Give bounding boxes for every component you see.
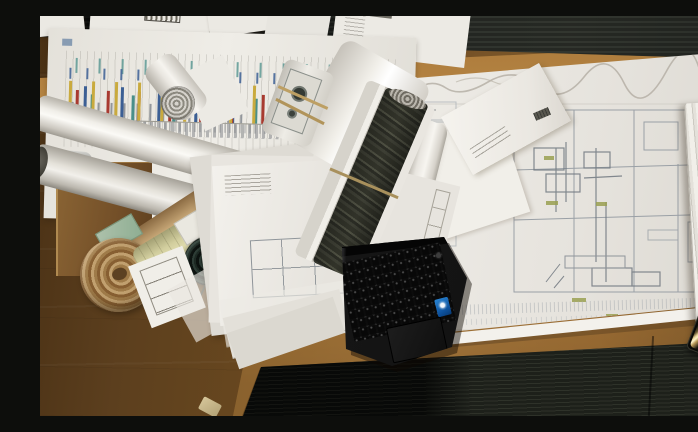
desk-photo-scene bbox=[40, 16, 698, 416]
mini-roll-spiral-end bbox=[161, 86, 195, 120]
envelope-address-lines bbox=[469, 126, 512, 161]
printed-block bbox=[370, 16, 393, 19]
laptop-power-button bbox=[436, 253, 441, 258]
printed-table-block bbox=[144, 16, 181, 23]
chart-legend-mark bbox=[62, 39, 72, 46]
sheet-title-lines bbox=[224, 173, 271, 195]
envelope-barcode-mark bbox=[533, 107, 551, 121]
